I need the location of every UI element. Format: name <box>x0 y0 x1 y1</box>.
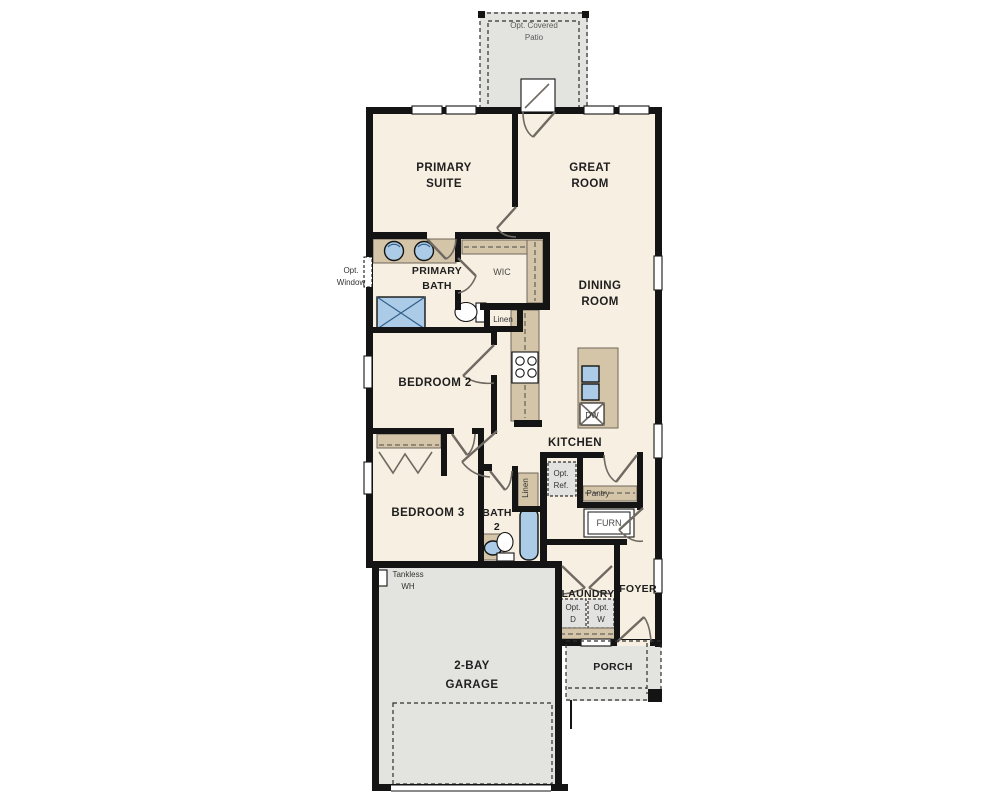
linen-hall-label: Linen <box>521 478 530 498</box>
primary-bath-label: PRIMARY <box>412 265 462 277</box>
garage-slab <box>377 566 558 786</box>
tankless-label-2: WH <box>401 582 415 591</box>
opt-dryer-label-2: D <box>570 615 576 624</box>
window <box>654 256 662 290</box>
patio-label-2: Patio <box>525 33 544 42</box>
tankless-label: Tankless <box>392 570 423 579</box>
bath2-label-2: 2 <box>494 521 500 533</box>
dining-room-label-2: ROOM <box>581 296 618 308</box>
primary-suite-label-2: SUITE <box>426 178 462 190</box>
pantry-label: Pantry <box>586 489 609 498</box>
primary-suite-label: PRIMARY <box>416 162 471 174</box>
garage-label-2: GARAGE <box>446 679 499 691</box>
opt-ref-box <box>548 462 576 496</box>
bedroom3-closet-shelf <box>377 434 441 448</box>
great-room-label: GREAT <box>569 162 610 174</box>
window <box>364 462 372 494</box>
toilet-2-bowl <box>497 533 513 552</box>
island-sink-1 <box>582 366 599 382</box>
furnace-label: FURN <box>597 518 622 528</box>
dining-room-label: DINING <box>579 280 622 292</box>
opt-ref-label: Opt. <box>553 469 568 478</box>
toilet-2-tank <box>497 553 514 561</box>
foyer-label: FOYER <box>619 583 657 595</box>
floor-plan-canvas: Opt. Covered Patio PRIMARY SUITE GREAT R… <box>0 0 1000 800</box>
porch-label: PORCH <box>593 661 632 673</box>
wic-label: WIC <box>493 267 511 277</box>
garage-label: 2-BAY <box>454 660 489 672</box>
window <box>581 639 611 646</box>
bath2-label: BATH <box>482 507 512 519</box>
great-room-label-2: ROOM <box>571 178 608 190</box>
porch-column <box>648 689 662 702</box>
patio-label: Opt. Covered <box>510 21 558 30</box>
island-sink-2 <box>582 384 599 400</box>
window <box>364 356 372 388</box>
window <box>654 424 662 458</box>
kitchen-label: KITCHEN <box>548 437 602 449</box>
primary-bath-label-2: BATH <box>422 280 452 292</box>
bedroom3-label: BEDROOM 3 <box>391 507 464 519</box>
bathtub <box>520 508 538 560</box>
window <box>446 106 476 114</box>
window <box>584 106 614 114</box>
window <box>619 106 649 114</box>
linen-bath-label: Linen <box>493 315 513 324</box>
opt-window-label-2: Window <box>337 278 366 287</box>
window <box>412 106 442 114</box>
range <box>512 352 538 383</box>
laundry-label: LAUNDRY <box>561 588 614 600</box>
opt-washer-label-2: W <box>597 615 605 624</box>
bedroom2-label: BEDROOM 2 <box>398 377 471 389</box>
opt-ref-label-2: Ref. <box>554 481 569 490</box>
floor-plan-drawing: Opt. Covered Patio PRIMARY SUITE GREAT R… <box>0 0 1000 800</box>
opt-window-label: Opt. <box>343 266 358 275</box>
opt-dryer-label: Opt. <box>565 603 580 612</box>
opt-washer-label: Opt. <box>593 603 608 612</box>
dishwasher-label: DW <box>585 411 599 420</box>
